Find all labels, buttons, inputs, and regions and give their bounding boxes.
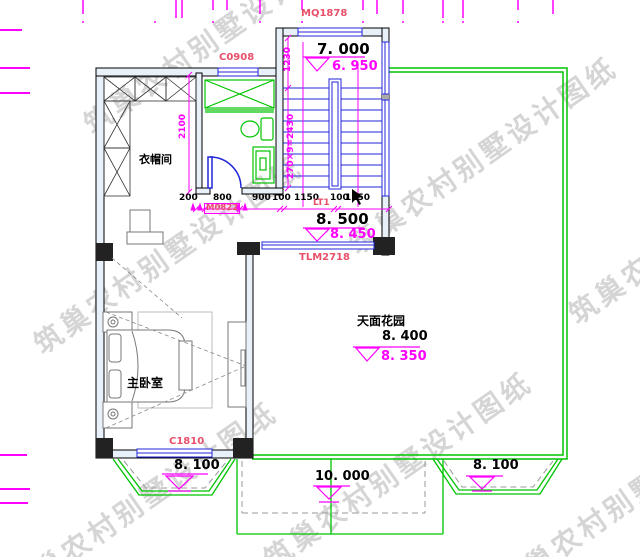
dim-1150b: 1150: [345, 194, 370, 203]
dim-100a: 100: [272, 194, 291, 203]
level-roof-ridge: 10. 000: [315, 470, 370, 483]
level-stair-finish: 6. 950: [332, 60, 378, 73]
level-garden-structural: 8. 400: [382, 330, 428, 343]
desk: [127, 210, 163, 244]
bathroom-door: [208, 157, 241, 188]
level-landing-finish: 8. 450: [330, 228, 376, 241]
dim-stair-run: 270×9=2430: [287, 114, 296, 179]
level-landing-structural: 8. 500: [316, 212, 369, 227]
stair-tag: LT1: [313, 199, 330, 208]
stair-window-tag: MQ1878: [301, 9, 347, 19]
dim-900: 900: [252, 194, 271, 203]
level-bay-right: 8. 100: [473, 459, 519, 472]
dim-200: 200: [179, 194, 198, 203]
level-bay-left: 8. 100: [174, 459, 220, 472]
room-label-roof-garden: 天面花园: [357, 315, 405, 327]
terrace-door-tag: TLM2718: [299, 253, 350, 263]
roof-garden-railing: [252, 68, 567, 459]
toilet-tank-icon: [261, 118, 273, 140]
room-label-master-bedroom: 主卧室: [127, 377, 163, 389]
stair-handrail: [329, 79, 341, 189]
left-dimension-dashes: [0, 30, 30, 503]
bath-door-tag: M0822: [205, 204, 239, 213]
room-label-cloakroom: 衣帽间: [139, 154, 172, 165]
bed: [103, 312, 246, 428]
level-stair-structural: 7. 000: [317, 42, 370, 57]
dim-800: 800: [213, 194, 232, 203]
floorplan-canvas: 筑巢农村别墅设计图纸 筑巢农村别墅设计图纸 筑巢农村别墅设计图纸 筑巢农村别墅设…: [0, 0, 640, 557]
bedroom-window-tag: C1810: [169, 437, 204, 447]
dim-cloak-height: 2100: [179, 114, 188, 139]
level-garden-finish: 8. 350: [381, 350, 427, 363]
bath-window-tag: C0908: [219, 53, 254, 63]
toilet-icon: [241, 121, 259, 137]
bathroom-fixtures: [205, 80, 274, 183]
dim-stair-top-width: 1230: [284, 47, 293, 72]
